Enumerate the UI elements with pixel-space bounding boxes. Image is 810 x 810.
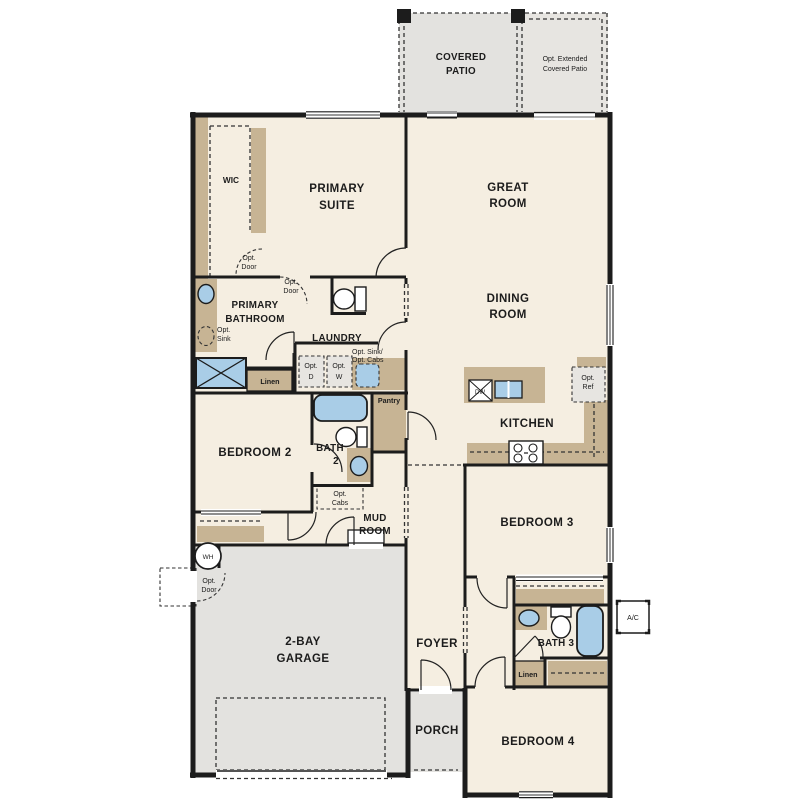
label-opt-cabs-l1: Opt. bbox=[333, 491, 346, 498]
label-opt-door-wic-l1: Opt. bbox=[242, 255, 255, 262]
label-covered-patio-l2: PATIO bbox=[446, 66, 476, 77]
label-opt-ref-l2: Ref bbox=[583, 384, 594, 391]
label-dining-room-l2: ROOM bbox=[489, 309, 526, 321]
opt-dryer-box bbox=[299, 356, 324, 387]
label-opt-door-garage-l1: Opt. bbox=[202, 578, 215, 585]
kitchen-window-glass bbox=[427, 111, 457, 114]
bath2-toilet-tank bbox=[357, 427, 367, 447]
label-opt-sink-l1: Opt. bbox=[217, 327, 230, 334]
bedroom2-closet-opening bbox=[201, 509, 261, 516]
label-opt-sink-cabs-l2: Opt. Cabs bbox=[352, 357, 384, 364]
label-bath2-l2: 2 bbox=[333, 456, 339, 467]
label-opt-ext-patio-l2: Covered Patio bbox=[543, 66, 587, 73]
opt-extended-patio-floor bbox=[523, 13, 608, 113]
label-ac-unit: A/C bbox=[627, 615, 639, 622]
bath3-toilet-bowl bbox=[552, 616, 571, 638]
label-primary-suite-l1: PRIMARY bbox=[309, 183, 364, 195]
label-linen-primary: Linen bbox=[260, 377, 279, 386]
primary-toilet-tank bbox=[355, 287, 366, 311]
label-opt-cabs-l2: Cabs bbox=[332, 500, 349, 507]
label-wic: WIC bbox=[223, 175, 239, 185]
opt-laundry-sink bbox=[356, 364, 379, 387]
bedroom2-closet-shelf bbox=[197, 526, 264, 542]
label-porch: PORCH bbox=[415, 725, 459, 737]
label-bedroom4: BEDROOM 4 bbox=[501, 736, 574, 748]
label-opt-dryer-l2: D bbox=[308, 374, 313, 381]
opt-washer-box bbox=[327, 356, 352, 387]
label-opt-door-bath-l2: Door bbox=[283, 288, 299, 295]
label-great-room-l1: GREAT bbox=[487, 182, 528, 194]
label-opt-sink-l2: Sink bbox=[217, 336, 231, 343]
label-bedroom2: BEDROOM 2 bbox=[218, 447, 291, 459]
covered-patio-floor bbox=[399, 13, 523, 113]
label-opt-ext-patio-l1: Opt. Extended bbox=[543, 56, 588, 63]
bedroom3-closet-shelf bbox=[516, 589, 604, 604]
label-great-room-l2: ROOM bbox=[489, 198, 526, 210]
label-bath3: BATH 3 bbox=[538, 638, 575, 649]
label-bath2-l1: BATH bbox=[316, 443, 344, 454]
kitchen-cabinet-over-ref bbox=[577, 357, 606, 368]
label-covered-patio-l1: COVERED bbox=[436, 52, 487, 63]
label-kitchen: KITCHEN bbox=[500, 418, 554, 430]
floor-plan-drawing: COVERED PATIO Opt. Extended Covered Pati… bbox=[0, 0, 810, 810]
label-opt-door-garage-l2: Door bbox=[201, 587, 217, 594]
bath3-sink bbox=[519, 610, 539, 626]
label-linen-bath3: Linen bbox=[518, 670, 537, 679]
wic-shelf-right bbox=[251, 128, 266, 233]
wic-shelf-left bbox=[195, 117, 208, 281]
label-bedroom3: BEDROOM 3 bbox=[500, 517, 573, 529]
label-mud-room-l1: MUD bbox=[363, 513, 386, 524]
label-primary-suite-l2: SUITE bbox=[319, 200, 355, 212]
label-primary-bathroom-l2: BATHROOM bbox=[225, 314, 284, 325]
label-opt-door-wic-l2: Door bbox=[241, 264, 257, 271]
bedroom4-closet-shelf bbox=[548, 661, 607, 686]
primary-toilet-bowl bbox=[334, 289, 355, 309]
label-dining-room-l1: DINING bbox=[487, 293, 530, 305]
label-garage-l1: 2-BAY bbox=[285, 636, 320, 648]
label-laundry: LAUNDRY bbox=[312, 333, 362, 344]
label-primary-bathroom-l1: PRIMARY bbox=[232, 300, 279, 311]
opt-garage-door-opening bbox=[189, 571, 197, 602]
label-mud-room-l2: ROOM bbox=[359, 526, 391, 537]
front-door-opening bbox=[419, 686, 452, 694]
label-pantry: Pantry bbox=[378, 396, 400, 405]
label-garage-l2: GARAGE bbox=[277, 653, 330, 665]
primary-sink bbox=[198, 285, 214, 304]
bath2-sink bbox=[351, 457, 368, 476]
label-dishwasher: DW bbox=[475, 390, 485, 396]
kitchen-counter-right bbox=[584, 400, 608, 443]
label-opt-washer-l2: W bbox=[336, 374, 343, 381]
label-foyer: FOYER bbox=[416, 638, 458, 650]
label-opt-door-bath-l1: Opt. bbox=[284, 279, 297, 286]
label-opt-sink-cabs-l1: Opt. Sink/ bbox=[352, 349, 383, 356]
bath3-tub bbox=[577, 606, 603, 656]
patio-post-left bbox=[397, 9, 411, 23]
label-opt-washer-l1: Opt. bbox=[332, 363, 345, 370]
floor-plan-page: COVERED PATIO Opt. Extended Covered Pati… bbox=[0, 0, 810, 810]
patio-post-right bbox=[511, 9, 525, 23]
bath2-tub bbox=[314, 395, 367, 421]
label-opt-ref-l1: Opt. bbox=[581, 375, 594, 382]
label-opt-dryer-l1: Opt. bbox=[304, 363, 317, 370]
label-water-heater: WH bbox=[203, 554, 214, 561]
